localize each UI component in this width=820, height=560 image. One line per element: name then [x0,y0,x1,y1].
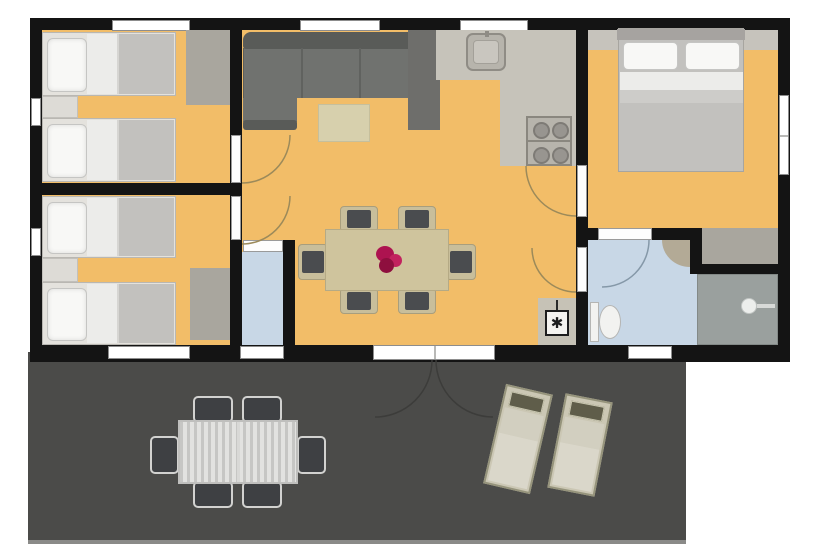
bathroom-divider-wall-h [690,264,778,274]
outdoor-chair-left [150,436,179,474]
outdoor-table [178,420,298,484]
dining-chair-right [446,244,476,280]
wc-door [243,240,283,252]
bathroom-toilet-bowl [599,305,621,339]
bathroom-door [598,228,652,240]
wall-living-master-mid [576,217,588,247]
sofa-chaise [243,98,297,122]
bed-sheet [87,198,117,256]
double-bed-blanket-band [620,90,743,103]
sofa-seam-2 [359,48,361,98]
bed-blanket [117,120,174,180]
sofa-seam-1 [301,48,303,98]
master-wardrobe [702,228,778,264]
floor-plan: ✱ [0,0,820,560]
wc-right-wall [283,240,295,345]
burner [533,122,550,139]
outdoor-chair-bottom-2 [242,481,282,508]
double-bed-sheet-fold [620,72,743,90]
wall-living-master-bottom [576,292,588,345]
window-bathroom-bottom [628,346,672,359]
outdoor-chair-bottom-1 [193,481,233,508]
boiler-symbol: ✱ [551,314,564,332]
double-bed-pillow-right [685,42,740,70]
window-master-right [779,95,789,175]
window-living-top [300,20,380,31]
dining-chair-bottom-1 [340,288,378,314]
double-bed-headboard [617,29,745,40]
single-bed-1 [42,32,176,96]
boiler-box: ✱ [545,310,569,336]
sofa-body [243,48,420,98]
boiler-appliance: ✱ [538,298,576,345]
double-bed-pillow-left [623,42,678,70]
shower [697,274,778,345]
wall-bedrooms-living-bottom [230,240,242,345]
window-bedroom-1-top [112,20,190,31]
double-bed [618,28,744,172]
wall-bedroom-divider [30,183,242,195]
nightstand-bedroom-1 [42,96,78,118]
bed-blanket [117,284,174,343]
master-bedroom-door [577,165,587,217]
wall-bedrooms-living-top [230,30,242,135]
stove [526,116,572,166]
single-bed-4 [42,282,176,345]
bathroom-toilet-tank [590,302,599,342]
window-wc-bottom [240,346,284,359]
window-bedroom-2-bottom [108,346,190,359]
bedroom-2-door [231,196,241,240]
room-wc [242,252,283,345]
burner [533,147,550,164]
rug [318,104,370,142]
wardrobe-bedroom-2 [190,268,230,340]
wardrobe-bedroom-1 [186,30,230,105]
single-bed-3 [42,196,176,258]
flower-centerpiece [379,258,394,273]
outdoor-chair-top-1 [193,396,233,423]
bed-blanket [117,34,174,94]
bed-sheet [87,120,117,180]
pillow [47,202,87,254]
wall-living-master-top [576,30,588,165]
deck-edge [28,540,686,544]
dining-table [325,229,449,291]
bed-sheet [87,284,117,343]
boiler-pipe [556,300,558,310]
nightstand-bedroom-2 [42,258,78,282]
sofa-back [243,32,420,49]
kitchen-sink [466,33,506,71]
single-bed-2 [42,118,176,182]
burner [552,147,569,164]
pillow [47,288,87,341]
outdoor-chair-right [297,436,326,474]
bedroom-1-door [231,135,241,183]
sofa-chaise-arm [243,120,297,130]
window-bedroom-2-left [31,228,41,256]
terrace-french-door [373,345,495,360]
outdoor-chair-top-2 [242,396,282,423]
dining-chair-bottom-2 [398,288,436,314]
burner [552,122,569,139]
shower-head-icon [741,298,757,314]
bed-blanket [117,198,174,256]
bed-sheet [87,34,117,94]
sink-basin [473,40,499,64]
pillow [47,124,87,178]
window-bedroom-1-left [31,98,41,126]
outdoor-table-split [237,422,240,482]
sink-faucet [485,31,489,37]
bathroom-hall-door [577,247,587,292]
stove-split [528,140,570,142]
shower-arm-icon [757,304,775,308]
pillow [47,38,87,92]
dining-chair-left [298,244,328,280]
